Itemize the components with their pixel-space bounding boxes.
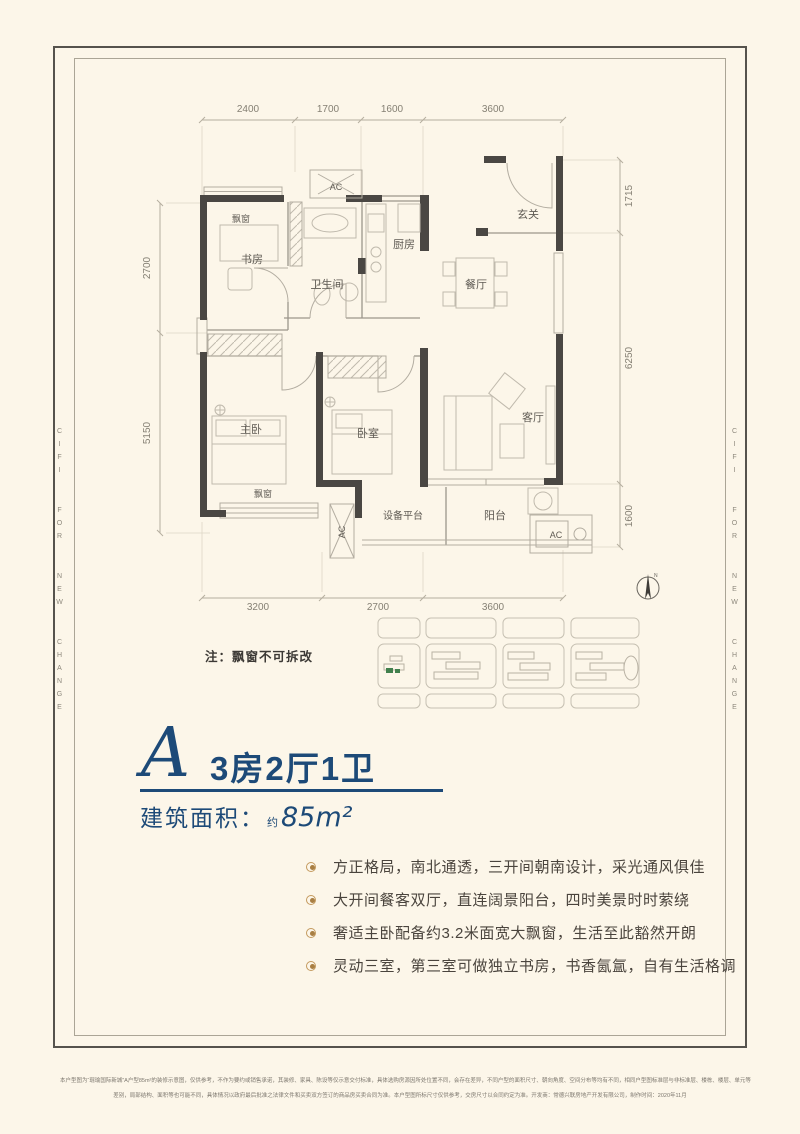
feature-item: 大开间餐客双厅，直连阔景阳台，四时美景时时萦绕 (306, 883, 736, 916)
room-bath: 卫生间 (311, 277, 344, 291)
dim-left-2: 5150 (142, 421, 153, 444)
disclaimer-line-1: 本户型图为“琨瑜国际新城”A户型85m²的装修示意图，仅供参考，不作为要约或销售… (60, 1074, 740, 1089)
feature-list: 方正格局，南北通透，三开间朝南设计，采光通风俱佳 大开间餐客双厅，直连阔景阳台，… (306, 850, 736, 982)
dim-bottom-2: 2700 (367, 602, 390, 613)
area-row: 建筑面积： 约 85m² (140, 799, 352, 833)
room-bay-top: 飘窗 (232, 213, 250, 224)
bullet-icon (306, 928, 316, 938)
side-slogan-left: CIFI FOR NEW CHANGE (56, 428, 63, 718)
floorplan: 2400 1700 1600 3600 2700 5150 1715 6250 … (95, 95, 695, 720)
plan-note: 注：飘窗不可拆改 (205, 649, 313, 664)
area-label: 建筑面积： (140, 799, 265, 833)
north-compass-icon: N (637, 573, 659, 599)
disclaimer-line-2: 差别，局部结构、面积等也可能不同，具体情况以政府最后批准之法律文件和买卖双方签订… (60, 1089, 740, 1104)
room-kitchen: 厨房 (393, 238, 415, 251)
feature-text: 奢适主卧配备约3.2米面宽大飘窗，生活至此豁然开朗 (333, 922, 696, 943)
room-equipment: 设备平台 (383, 509, 423, 522)
room-ac-top: AC (330, 182, 343, 192)
feature-text: 灵动三室，第三室可做独立书房，书香氤氲，自有生活格调 (333, 955, 736, 976)
room-foyer: 玄关 (517, 207, 539, 221)
dim-top-4: 3600 (482, 104, 505, 115)
unit-letter: A (141, 718, 190, 790)
bullet-icon (306, 862, 316, 872)
feature-text: 大开间餐客双厅，直连阔景阳台，四时美景时时萦绕 (333, 889, 690, 910)
dim-bottom-1: 3200 (247, 602, 270, 613)
dim-top-2: 1700 (317, 104, 340, 115)
dim-right-1: 1715 (624, 184, 635, 207)
side-slogan-right: CIFI FOR NEW CHANGE (731, 428, 738, 718)
floorplan-drawing: 2400 1700 1600 3600 2700 5150 1715 6250 … (95, 95, 695, 720)
dim-right-3: 1600 (624, 504, 635, 527)
unit-layout: 3房2厅1卫 (210, 742, 376, 790)
room-study: 书房 (241, 253, 263, 266)
dim-top-1: 2400 (237, 104, 260, 115)
area-approx-prefix: 约 (267, 814, 278, 830)
dimension-lines (157, 117, 623, 601)
title-underline (140, 789, 443, 792)
room-bay-bottom: 飘窗 (254, 488, 272, 499)
dim-left-1: 2700 (142, 256, 153, 279)
site-map-green-marker (386, 668, 400, 673)
room-bedroom: 卧室 (357, 426, 379, 440)
room-ac-left: AC (337, 525, 347, 538)
site-map (378, 618, 639, 708)
room-master: 主卧 (240, 423, 262, 436)
feature-item: 灵动三室，第三室可做独立书房，书香氤氲，自有生活格调 (306, 949, 736, 982)
legal-disclaimer: 本户型图为“琨瑜国际新城”A户型85m²的装修示意图，仅供参考，不作为要约或销售… (60, 1074, 740, 1104)
dim-top-3: 1600 (381, 104, 404, 115)
dim-bottom-3: 3600 (482, 602, 505, 613)
feature-item: 奢适主卧配备约3.2米面宽大飘窗，生活至此豁然开朗 (306, 916, 736, 949)
area-value: 85m² (281, 802, 352, 833)
door-arcs (254, 163, 552, 392)
room-ac-right: AC (550, 530, 563, 540)
svg-text:N: N (654, 573, 658, 579)
room-balcony: 阳台 (484, 508, 506, 522)
room-dining: 餐厅 (465, 277, 487, 291)
feature-item: 方正格局，南北通透，三开间朝南设计，采光通风俱佳 (306, 850, 736, 883)
bullet-icon (306, 961, 316, 971)
bullet-icon (306, 895, 316, 905)
dim-right-2: 6250 (624, 346, 635, 369)
room-living: 客厅 (522, 410, 544, 424)
feature-text: 方正格局，南北通透，三开间朝南设计，采光通风俱佳 (333, 856, 705, 877)
